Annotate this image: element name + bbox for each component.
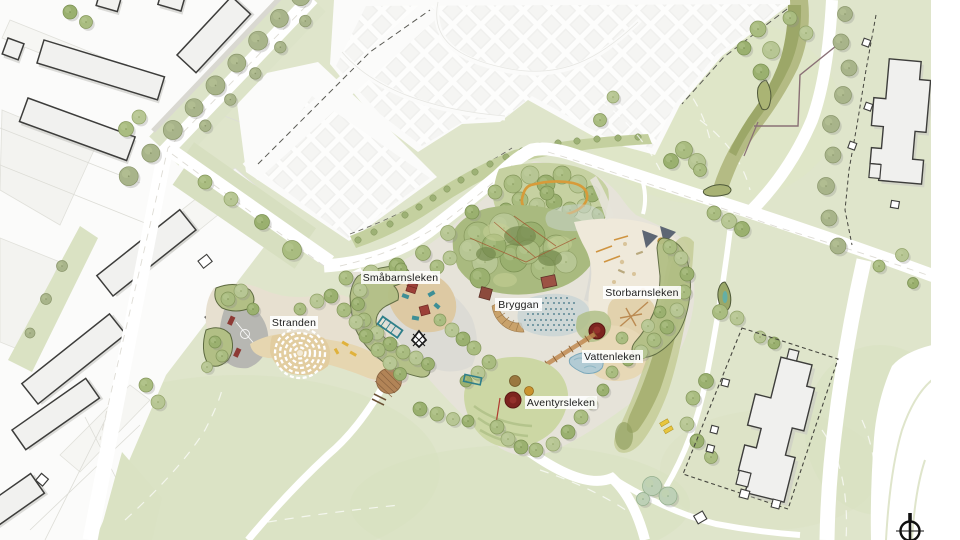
- svg-text:Aventyrsleken: Aventyrsleken: [527, 397, 595, 409]
- svg-text:Stranden: Stranden: [272, 317, 316, 329]
- svg-text:Småbarnsleken: Småbarnsleken: [363, 272, 439, 284]
- svg-text:Bryggan: Bryggan: [498, 299, 539, 311]
- svg-text:Vattenleken: Vattenleken: [584, 351, 641, 363]
- svg-text:Storbarnsleken: Storbarnsleken: [605, 287, 678, 299]
